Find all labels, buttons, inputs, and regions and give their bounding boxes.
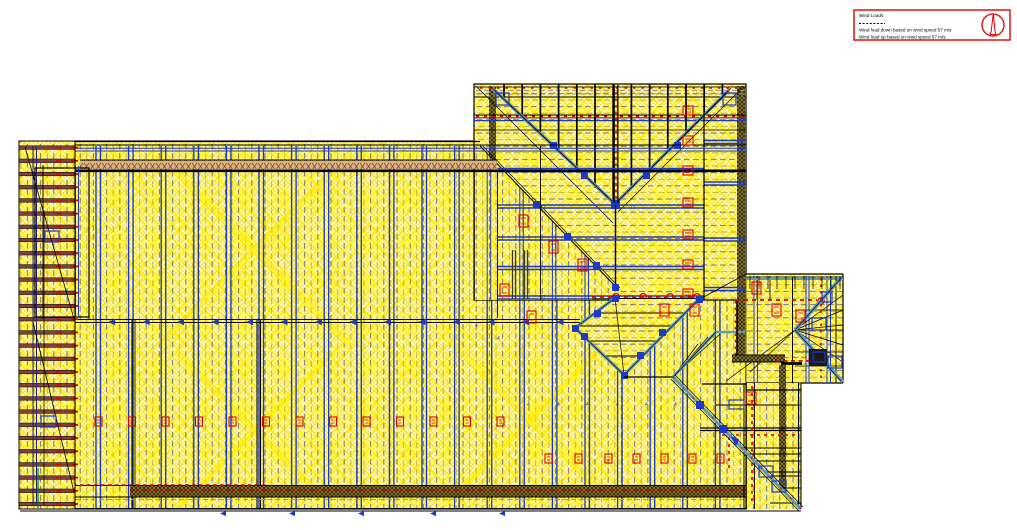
svg-text:Wind load down based on wind s: Wind load down based on wind speed 57 m/… — [859, 28, 952, 33]
svg-text:Wind Loads: Wind Loads — [859, 13, 884, 18]
svg-text:77: 77 — [540, 295, 546, 301]
svg-text:4: 4 — [527, 402, 530, 408]
svg-text:77: 77 — [540, 266, 546, 272]
svg-text:4: 4 — [497, 336, 500, 342]
svg-text:77: 77 — [540, 205, 546, 211]
svg-text:4: 4 — [475, 323, 478, 329]
svg-text:77: 77 — [630, 205, 636, 211]
svg-text:4: 4 — [645, 402, 648, 408]
svg-text:Wind load up based on wind spe: Wind load up based on wind speed 57 m/s — [859, 35, 946, 40]
svg-text:4: 4 — [674, 402, 677, 408]
svg-text:77: 77 — [628, 295, 634, 301]
svg-text:4: 4 — [616, 402, 619, 408]
svg-text:4: 4 — [586, 402, 589, 408]
svg-text:4: 4 — [557, 402, 560, 408]
